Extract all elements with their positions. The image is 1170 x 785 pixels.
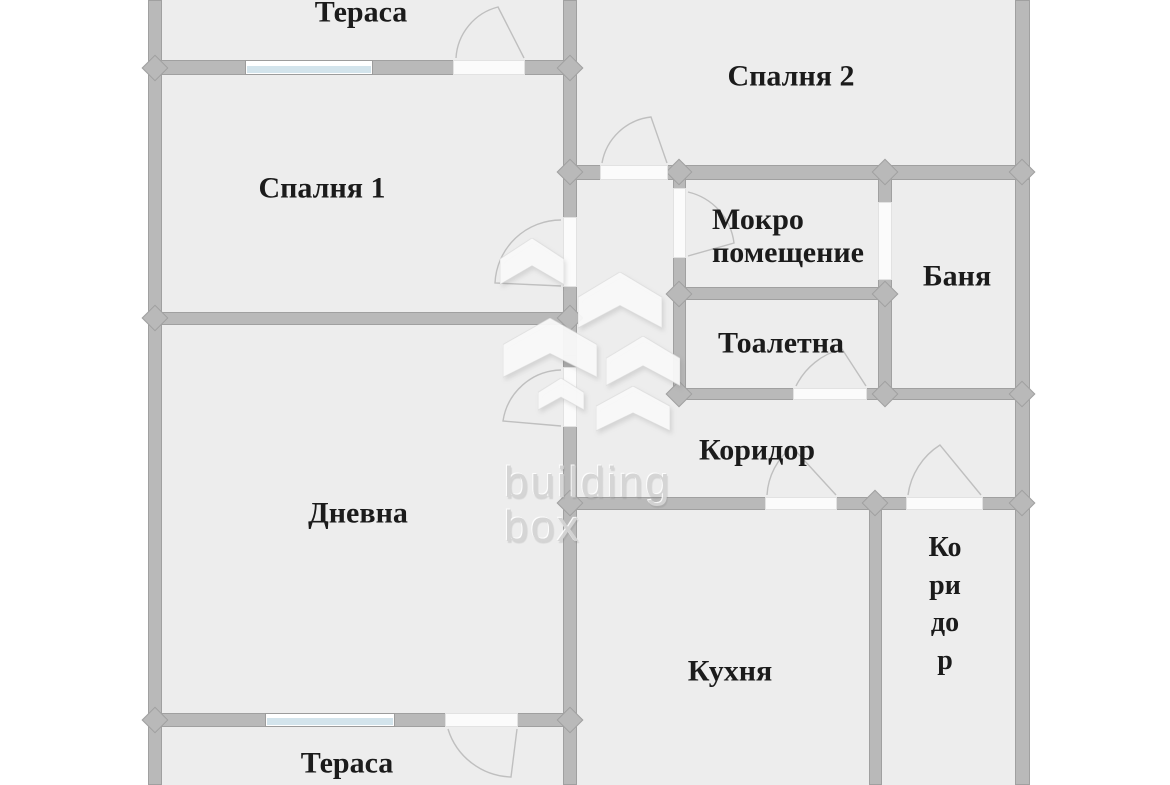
room-label-kuhnya: Кухня — [688, 655, 773, 688]
door-opening — [673, 188, 686, 258]
watermark-logo-shape — [538, 378, 584, 418]
room-label-mokro-pomeshtenie: Мокро помещение — [712, 203, 864, 269]
watermark-text-line1: building — [504, 458, 672, 508]
room-label-banya: Баня — [923, 260, 991, 293]
wall — [148, 0, 162, 785]
room-label-toaletna: Тоалетна — [718, 327, 844, 360]
door-opening — [453, 60, 525, 75]
room-label-terasa-top: Тераса — [315, 0, 408, 29]
room-label-spalnya-1: Спалня 1 — [258, 172, 385, 205]
door-opening — [445, 713, 518, 727]
window-glass — [247, 66, 371, 73]
wall — [869, 497, 882, 785]
room-label-koridor: Коридор — [699, 434, 815, 467]
door-opening — [765, 497, 837, 510]
door-opening — [600, 165, 668, 180]
window — [245, 60, 373, 75]
watermark-logo-shape — [596, 386, 670, 442]
watermark-text-line2: box — [504, 502, 581, 552]
wall — [673, 287, 892, 300]
door-opening — [793, 388, 867, 400]
watermark-logo-shape — [500, 238, 564, 296]
door-opening — [563, 217, 577, 287]
room-label-dnevna: Дневна — [308, 497, 408, 530]
room-label-koridor-vertical: Коридор — [927, 529, 963, 679]
window — [265, 713, 395, 727]
room-label-terasa-bottom: Тераса — [301, 747, 394, 780]
room-label-spalnya-2: Спалня 2 — [727, 60, 854, 93]
door-opening — [906, 497, 983, 510]
floor-plan: ТерасаСпалня 1Спалня 2Мокро помещениеБан… — [0, 0, 1170, 785]
door-opening — [878, 202, 892, 280]
window-glass — [267, 718, 393, 725]
